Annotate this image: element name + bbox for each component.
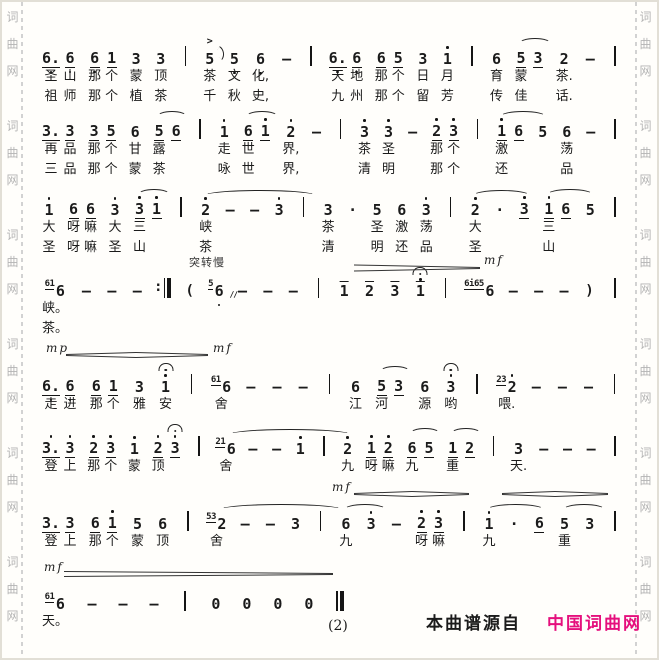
octave-dot-above [44, 197, 54, 200]
dash-note: — [532, 274, 546, 340]
note: 5个个 [391, 42, 405, 108]
lyric-line1 [388, 300, 402, 320]
note: 1 [258, 115, 272, 181]
lyric-line1 [263, 533, 277, 553]
dash-note: — [537, 432, 551, 478]
note: 5露茶 [152, 115, 166, 181]
watermark-gap [638, 194, 653, 222]
dash-note: — [583, 42, 597, 108]
octave-dot-above [442, 46, 452, 49]
note-digit: · [495, 202, 505, 219]
octave-dot-below [90, 71, 100, 74]
note-digit: 1 [295, 441, 305, 458]
lyric-line2: 圣 [42, 239, 56, 259]
lyric-line1 [105, 300, 119, 320]
watermark-char: 曲 [638, 576, 653, 603]
lyric-line1 [582, 300, 596, 320]
watermark-gap [638, 412, 653, 440]
lyric-line1 [363, 300, 377, 320]
note-digit: — [288, 283, 298, 300]
barline [187, 509, 189, 533]
beam-group: 3.登3上 [42, 432, 77, 478]
grace-notes: 6i65 [464, 280, 484, 290]
watermark-char: 网 [5, 58, 20, 85]
lyric-line1: 荡 [419, 219, 433, 239]
note-digit: 2 [217, 516, 227, 533]
hairpin-line [502, 492, 555, 494]
note: 3 [388, 274, 402, 340]
lyric-line1 [444, 219, 458, 239]
barline [493, 434, 495, 458]
note-digit: 3 [394, 378, 404, 396]
note: 2那那 [430, 115, 444, 181]
note-digit: 6 [90, 50, 100, 68]
octave-dot-above [384, 119, 394, 122]
lyric-line1 [178, 613, 192, 633]
lyric-line1 [583, 533, 597, 553]
slur-arc [229, 429, 351, 440]
note-digit: 2 [286, 124, 296, 141]
note-digit: 0 [304, 596, 314, 613]
note-digit: 6 [561, 201, 571, 219]
octave-dot-below [42, 399, 60, 402]
rest-note: 0 [240, 587, 254, 633]
repeat-dots: : [156, 279, 161, 297]
hairpin-line [66, 353, 136, 355]
note-digit: 5 [393, 50, 403, 68]
barline [191, 372, 193, 396]
lyric-line1: 茶. [556, 68, 573, 88]
note: 2呀 [415, 507, 429, 553]
watermark-char: 网 [5, 385, 20, 412]
fermata-mark [158, 363, 173, 371]
lyric-line1: 峡。 [42, 300, 68, 320]
slur-arc [157, 111, 187, 122]
note-digit: 6 [86, 201, 96, 219]
note-digit: ( [185, 283, 195, 300]
lyric-line1 [608, 533, 622, 553]
note-digit: 3 [390, 283, 400, 300]
lyric-line2 [506, 320, 520, 340]
note-digit: 6 [130, 124, 140, 141]
note: 2那 [87, 432, 101, 478]
note-digit: 5 [585, 202, 595, 219]
note-digit: 6 [485, 283, 495, 300]
barline [185, 44, 187, 68]
beam-group: 6.走6进 [42, 370, 77, 416]
lyric-line1: 日 [416, 68, 430, 88]
lyric-line1 [302, 613, 316, 633]
note: 6.圣祖 [42, 42, 60, 108]
barline [463, 509, 465, 533]
dynamic-label: mf [213, 341, 233, 355]
watermark-char: 词 [638, 222, 653, 249]
lyric-line1 [507, 533, 521, 553]
lyric-line2 [223, 239, 237, 259]
lyric-line1 [258, 141, 272, 161]
barline [445, 276, 447, 300]
lyric-line1: 那 [88, 533, 102, 553]
lyric-line2 [472, 320, 486, 340]
barline [198, 434, 200, 458]
note-digit: 1 [161, 379, 171, 396]
note-digit: 2 [559, 51, 569, 68]
note-digit: 6 [55, 596, 65, 613]
lyric-line1 [314, 533, 328, 553]
lyric-line2: 祖 [44, 88, 58, 108]
dash-note: — [555, 370, 569, 416]
note: 1 [337, 274, 351, 340]
note: 2界,界, [282, 115, 299, 181]
octave-dot-above [449, 118, 459, 121]
slur-arc [204, 190, 316, 201]
barline [329, 372, 331, 396]
note: 1个 [105, 507, 119, 553]
lyric-line1: 嘛 [432, 533, 446, 553]
lyric-line2: 千 [203, 88, 217, 108]
lyric-line2: 山 [133, 239, 147, 259]
barline [310, 44, 312, 68]
beam-group: 6.天九6地州 [329, 42, 364, 108]
watermark-gap [638, 521, 653, 549]
lyric-line2 [536, 161, 550, 181]
note: 6江 [348, 370, 362, 416]
dash-note: — [130, 274, 144, 340]
hairpin-line [412, 495, 469, 497]
note: 6荡品 [560, 115, 574, 181]
lyric-line1: 月 [440, 68, 454, 88]
lyric-line2 [130, 320, 144, 340]
grace-notes: 21 [215, 438, 225, 448]
lyric-line1 [517, 219, 531, 239]
note-digit: 3 [134, 379, 144, 396]
dash-note: — [584, 115, 598, 181]
barline-cell [470, 370, 484, 416]
watermark-gap [5, 194, 20, 222]
grace-notes: 23 [496, 376, 506, 386]
barline [184, 589, 186, 613]
lyric-line2 [557, 320, 571, 340]
lyric-line1 [309, 141, 323, 161]
note: 6源 [418, 370, 432, 416]
note: 1三山 [542, 193, 556, 259]
fermata-mark [168, 424, 183, 432]
note-digit: 3 [585, 516, 595, 533]
lyric-line2 [261, 320, 275, 340]
note-digit: 3 [384, 124, 394, 141]
barline-cell [333, 115, 347, 181]
lyric-line1: 茶 [358, 141, 372, 161]
note-digit: · [348, 202, 358, 219]
lyric-line2: 三 [44, 161, 58, 181]
lyric-line1: 呀 [415, 533, 429, 553]
barline [340, 117, 342, 141]
note-digit: 1 [448, 440, 458, 458]
dash-note: — [286, 274, 300, 340]
note: 3嘛 [432, 507, 446, 553]
lyric-line2 [439, 320, 453, 340]
note: 1蒙 [127, 432, 141, 478]
page-number: (2) [328, 618, 348, 634]
lyric-line2: 圣 [468, 239, 482, 259]
barline [614, 509, 616, 533]
lyric-line2 [169, 161, 183, 181]
note-digit: 2 [153, 440, 163, 458]
lyric-line1 [238, 533, 252, 553]
note-digit: 1 [544, 201, 554, 219]
lyric-line1 [168, 458, 182, 478]
lyric-line1 [209, 613, 223, 633]
note: 3哟 [444, 370, 458, 416]
lyric-line2: 还 [395, 239, 409, 259]
note-digit: 1 [339, 283, 349, 300]
lyric-line1: 个 [106, 396, 120, 416]
fermata-mark [413, 267, 428, 275]
lyric-line1 [337, 300, 351, 320]
lyric-line1 [280, 68, 294, 88]
lyric-line2 [309, 161, 323, 181]
note-digit: — [107, 283, 117, 300]
source-prefix: 本曲谱源自 [426, 609, 521, 634]
barline-cell [608, 274, 622, 340]
watermark-char: 曲 [638, 31, 653, 58]
lyric-line1: 个 [447, 141, 461, 161]
beam-group: 3那那5个个 [87, 115, 118, 181]
note: 1 [413, 274, 427, 340]
repeat-barline: : [156, 276, 172, 300]
lyric-line1 [193, 141, 207, 161]
note: 6进 [63, 370, 77, 416]
lyric-line1: 蒙 [129, 68, 143, 88]
octave-dot-above [343, 436, 353, 439]
barline-cell [185, 370, 199, 416]
lyric-line1 [392, 396, 406, 416]
lyric-line1 [246, 458, 260, 478]
note-digit: 6. [42, 50, 60, 68]
lyric-line1 [223, 219, 237, 239]
lyric-line1 [608, 219, 622, 239]
lyric-line1 [583, 219, 597, 239]
lyric-line2: 九 [331, 88, 345, 108]
lyric-line1: 世 [241, 141, 255, 161]
beam-group: 6.圣祖6山师 [42, 42, 77, 108]
beam-group: 2呀3嘛 [415, 507, 446, 553]
lyric-line1 [608, 300, 622, 320]
lyric-line1: 天。 [42, 613, 68, 633]
note: 3日留 [416, 42, 430, 108]
beam-group: 5蒙佳3 [514, 42, 545, 108]
note-digit: — [311, 124, 321, 141]
watermark-char: 曲 [638, 358, 653, 385]
lyric-line1: 个 [105, 68, 119, 88]
note: 6九 [405, 432, 419, 478]
octave-dot-above [415, 278, 425, 281]
note: 6那 [89, 370, 103, 416]
watermark-left-column: 词曲网词曲网词曲网词曲网词曲网词曲网 [5, 4, 20, 658]
octave-dot-above [129, 436, 139, 439]
note-digit: 1 [219, 124, 229, 141]
note-digit: 6 [91, 378, 101, 396]
beam-group: 6九5 [405, 432, 436, 478]
note-digit: 6 [55, 283, 65, 300]
lyric-line1: 大 [468, 219, 482, 239]
final-barline [336, 589, 344, 613]
lyric-line1 [192, 458, 206, 478]
barline-cell [608, 193, 622, 259]
lyric-line1 [560, 458, 574, 478]
octave-dot-above [65, 435, 75, 438]
lyric-line2: 品 [63, 161, 77, 181]
lyric-line1: 重 [558, 533, 572, 553]
lyric-line1: 激 [495, 141, 509, 161]
note-digit: — [87, 596, 97, 613]
barline [614, 372, 616, 396]
lyric-line1 [506, 300, 520, 320]
octave-dot-below [65, 399, 75, 402]
lyric-line1 [536, 141, 550, 161]
octave-dot-above [421, 197, 431, 200]
dash-note: — [560, 432, 574, 478]
lyric-line1 [608, 68, 622, 88]
lyric-line2: 明 [370, 239, 384, 259]
beam-group: 2顶3 [151, 432, 182, 478]
note: 2峡茶 [199, 193, 213, 259]
lyric-line1: 那 [87, 458, 101, 478]
note-digit: 3 [65, 515, 75, 533]
note-digit: 2 [465, 440, 475, 458]
lyric-line1 [244, 396, 258, 416]
lyric-line1: 个 [391, 68, 405, 88]
note: 3茶清 [321, 193, 335, 259]
lyric-line1 [557, 300, 571, 320]
lyric-line1 [608, 458, 622, 478]
barline [614, 44, 616, 68]
watermark-char: 曲 [5, 576, 20, 603]
octave-dot-below [91, 399, 101, 402]
note-digit: — [586, 441, 596, 458]
note: 2九 [341, 432, 355, 478]
grace-notes: 53 [206, 513, 216, 523]
beam-group: 1三山6 [542, 193, 573, 259]
lyric-line1: 登 [44, 458, 58, 478]
note-digit: — [298, 379, 308, 396]
note: 3圣明 [382, 115, 396, 181]
source-credit: 本曲谱源自 中国词曲网 [426, 609, 642, 634]
note: 6那那 [374, 42, 388, 108]
beam-group: 3.再三3品品 [42, 115, 77, 181]
lyric-line1: 雅 [132, 396, 146, 416]
beam-group: 1呀2嘛 [364, 432, 395, 478]
lyric-line2 [286, 320, 300, 340]
watermark-char: 词 [5, 331, 20, 358]
barline-cell [312, 274, 326, 340]
watermark-char: 网 [638, 276, 653, 303]
lyric-line1 [296, 396, 310, 416]
octave-dot-below [329, 71, 347, 74]
lyric-line1: 嘛 [84, 219, 98, 239]
lyric-line2: 茶 [152, 161, 166, 181]
grace-notes: 5 [208, 280, 213, 290]
hairpin-line [555, 495, 608, 497]
lyric-line1: 品 [63, 141, 77, 161]
grace-notes: 61 [45, 280, 55, 290]
lyric-line1: 登 [44, 533, 58, 553]
octave-dot-above [260, 118, 270, 121]
lyric-line1 [271, 613, 285, 633]
rest-note: 0 [209, 587, 223, 633]
note-digit: 3 [519, 201, 529, 219]
note: 6那 [88, 507, 102, 553]
watermark-char: 网 [5, 276, 20, 303]
accent-mark: > [207, 37, 213, 47]
barline-cell [192, 432, 206, 478]
note-digit: · [509, 516, 519, 533]
sheet-music-page: 词曲网词曲网词曲网词曲网词曲网词曲网 词曲网词曲网词曲网词曲网词曲网词曲网 6.… [0, 0, 659, 660]
lyric-line2: 史, [252, 88, 269, 108]
barline-cell [322, 370, 336, 416]
watermark-gap [5, 303, 20, 331]
lyric-line1 [150, 219, 164, 239]
lyric-line1 [364, 533, 378, 553]
note-digit: 6 [407, 440, 417, 458]
lyric-line1: 甘 [128, 141, 142, 161]
lyric-line1 [532, 300, 546, 320]
lyric-line2 [174, 239, 188, 259]
dash-note: — [280, 42, 294, 108]
note-digit: 3 [135, 201, 145, 219]
lyric-line1 [174, 219, 188, 239]
lyric-line2 [333, 161, 347, 181]
lyric-line2: 佳 [514, 88, 528, 108]
note: 2 [463, 432, 477, 478]
lyric-line1 [147, 613, 161, 633]
lyric-line1: 上 [63, 458, 77, 478]
lyric-line1: 个 [104, 141, 118, 161]
lyric-line1 [85, 613, 99, 633]
rest-note: 0 [302, 587, 316, 633]
note-digit: 3 [449, 123, 459, 141]
octave-dot-above [110, 197, 120, 200]
note: 6.走 [42, 370, 60, 416]
lyric-line2: 芳 [440, 88, 454, 108]
watermark-char: 词 [638, 440, 653, 467]
octave-dot-above [417, 510, 427, 513]
barline-cell [181, 507, 195, 553]
watermark-gap [638, 630, 653, 658]
lyric-line2: 蒙 [128, 161, 142, 181]
lyric-line1: 呀 [67, 219, 81, 239]
note: 6呀呀 [67, 193, 81, 259]
lyric-line1 [471, 141, 485, 161]
barline-cell [608, 115, 622, 181]
note-digit: — [225, 202, 235, 219]
hairpin-line [136, 353, 208, 355]
note-digit: 1 [129, 441, 139, 458]
note: 3顶茶 [154, 42, 168, 108]
dash-note: — [406, 115, 420, 181]
note-digit: 2 [201, 202, 211, 219]
glissando-slashes: ∕∕ [229, 286, 237, 303]
slur-arc [519, 38, 551, 49]
lyric-line1 [116, 613, 130, 633]
watermark-char: 词 [638, 4, 653, 31]
note-digit: 1 [107, 50, 117, 68]
lyric-line1 [555, 396, 569, 416]
note-digit: 3 [274, 202, 284, 219]
system-1: 6.圣祖6山师6那那1个个3蒙植3顶茶5>茶千5文秋6化,史,—6.天九6地州6… [42, 42, 622, 108]
lyric-line1 [261, 300, 275, 320]
note-digit: 5 [106, 123, 116, 141]
